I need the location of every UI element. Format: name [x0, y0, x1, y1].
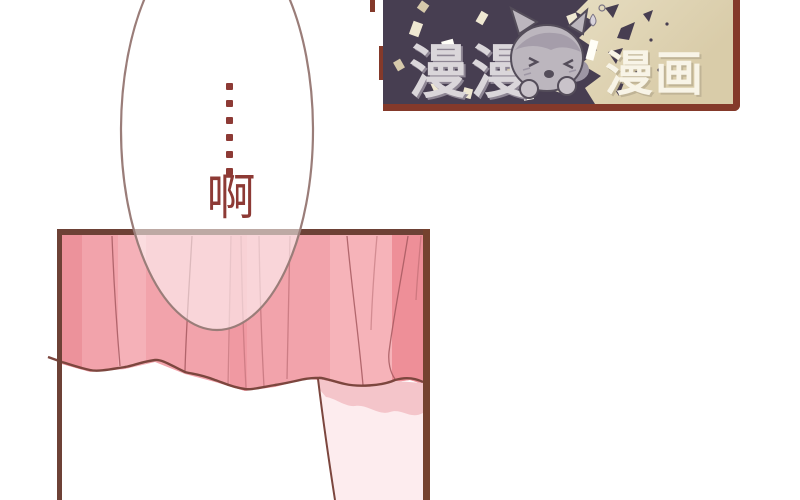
leg — [318, 379, 423, 500]
panel-border-right — [423, 229, 430, 500]
bubble-word: 啊 — [206, 169, 255, 226]
panel-border-left — [57, 229, 62, 500]
brand-right-text: 漫画 — [605, 46, 705, 102]
ellipsis-dot — [226, 134, 233, 141]
ellipsis-dot — [226, 117, 233, 124]
logo-banner: 漫漫 漫漫 漫画 漫画 — [383, 0, 740, 111]
logo-banner-art: 漫漫 漫漫 漫画 漫画 — [383, 0, 733, 104]
ellipsis-dot — [226, 100, 233, 107]
ellipsis-dot — [226, 151, 233, 158]
ellipsis-dot — [226, 83, 233, 90]
comic-page: 啊 — [0, 0, 800, 500]
banner-shard-fragment — [370, 0, 375, 12]
